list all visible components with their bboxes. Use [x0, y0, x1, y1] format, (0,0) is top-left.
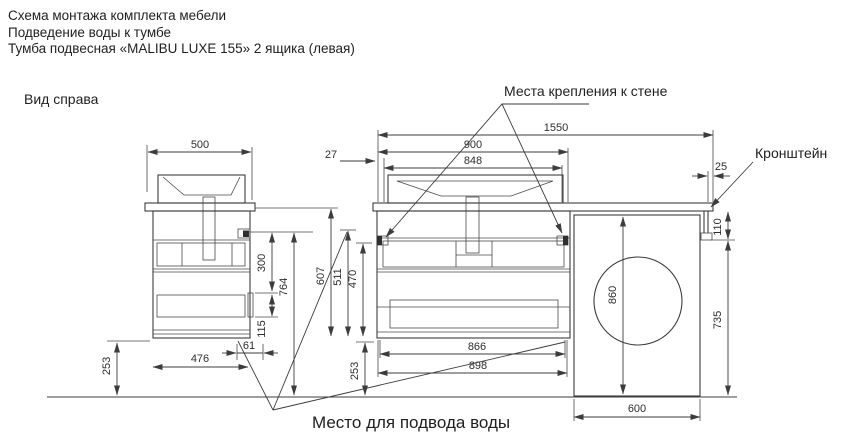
dim-top-to-bottom: 607 — [315, 267, 327, 285]
dim-wm-clearance: 735 — [712, 311, 724, 329]
dim-floor-to-top: 764 — [278, 278, 290, 296]
dim-handle-span: 115 — [256, 320, 268, 338]
dim-rear-offset: 61 — [243, 340, 255, 352]
front-basin-bowl — [397, 181, 553, 196]
dim-wm-height: 860 — [607, 286, 619, 304]
side-drawer-bottom — [157, 295, 245, 317]
water-leader-3 — [273, 342, 565, 410]
dim-side-floor-gap: 253 — [101, 357, 113, 375]
side-cabinet-body — [153, 211, 250, 338]
side-basin-bowl — [163, 177, 240, 195]
water-leader-1 — [238, 341, 273, 410]
dim-drawer-to-bottom: 470 — [347, 270, 359, 288]
dim-bracket-height: 110 — [712, 218, 724, 236]
assembly-diagram: 500 476 61 253 764 300 115 1550 — [0, 0, 841, 436]
washing-machine — [574, 215, 700, 396]
dim-total-length: 1550 — [544, 122, 568, 134]
dimensions: 500 476 61 253 764 300 115 1550 — [101, 122, 730, 417]
side-view-cabinet — [145, 175, 255, 338]
side-basin — [158, 175, 245, 203]
front-drawer-bottom — [390, 300, 558, 328]
side-countertop — [145, 203, 255, 211]
dim-mount-offset: 27 — [325, 149, 337, 161]
water-supply-label: Место для подвода воды — [312, 413, 510, 432]
drawing-canvas: Схема монтажа комплекта мебели Подведени… — [0, 0, 841, 436]
side-drain-pipe — [203, 197, 215, 260]
wall-bracket — [701, 211, 712, 240]
water-leader-2 — [273, 232, 347, 410]
wall-mount-label: Места крепления к стене — [504, 83, 668, 99]
dim-mount-to-bottom: 511 — [332, 268, 344, 286]
dim-bracket-drop: 300 — [256, 254, 268, 272]
front-view-cabinet — [373, 175, 713, 338]
countertop — [373, 203, 713, 211]
dim-side-depth: 500 — [191, 139, 209, 151]
dim-bottom-width-inner: 866 — [468, 341, 486, 353]
extension-lines — [107, 130, 735, 421]
front-drain-pipe — [466, 197, 479, 253]
view-label: Вид справа — [24, 91, 99, 107]
dim-mount-span: 848 — [464, 155, 482, 167]
leader-lines — [238, 104, 753, 410]
washing-machine-box — [574, 215, 700, 396]
dim-front-floor-gap: 253 — [349, 362, 361, 380]
wall-bracket-foot — [701, 233, 712, 240]
front-cabinet-body — [377, 211, 570, 338]
dim-countertop-overhang: 25 — [715, 161, 727, 173]
front-drawer-top — [383, 241, 564, 267]
dim-wm-width: 600 — [628, 403, 646, 415]
dim-side-bottom-depth: 476 — [191, 353, 209, 365]
bracket-label: Кронштейн — [755, 145, 827, 161]
